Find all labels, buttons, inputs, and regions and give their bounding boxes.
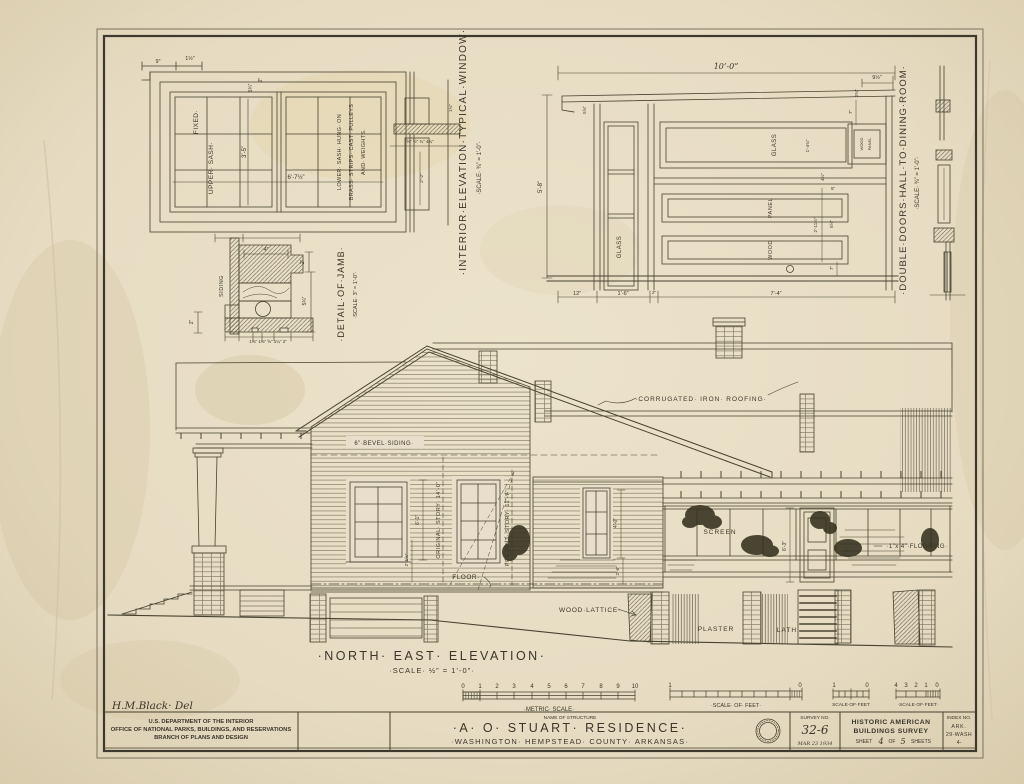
fixed-label: FIXED·	[193, 110, 200, 134]
panel-label: PANEL	[768, 198, 774, 218]
glass-label: GLASS	[772, 134, 778, 157]
dim-label: 2’-1⅝”	[404, 553, 409, 566]
survey-no-label: SURVEY NO.	[800, 715, 829, 721]
feet-scale-label: ·SCALE· OF· FEET·	[711, 703, 761, 709]
elevation-window	[452, 476, 504, 567]
delineator-signature: H.M.Black· Del	[111, 700, 193, 712]
present-story-label: PRESENT· STORY· 11’-7”	[505, 490, 511, 566]
jamb-detail-title: ·DETAIL·OF·JAMB·	[336, 246, 346, 341]
index-line: ARK.	[951, 724, 966, 730]
survey-no-value: 32-6	[802, 723, 829, 737]
wood-label: WOOD	[768, 240, 774, 260]
habs-line: HISTORIC AMERICAN	[851, 719, 930, 726]
dim-label: 2’-11½”	[812, 217, 818, 232]
dim-label: ⅝” ½” ¾” 4¾”	[406, 138, 434, 144]
survey-date: MAR 23 1934	[797, 741, 833, 747]
index-no-label: INDEX NO.	[947, 715, 972, 721]
dim-label: 6’-1”	[415, 515, 421, 525]
original-story-label: ORIGINAL· STORY· 14’-0”	[436, 481, 442, 558]
sheets-word: SHEETS	[911, 739, 932, 745]
window-detail-title: ·INTERIOR·ELEVATION·TYPICAL·WINDOW·	[458, 29, 469, 276]
bevel-siding-label: 6”·BEVEL·SIDING·	[354, 441, 413, 447]
dim-label: 5¼”	[302, 296, 308, 305]
dim-label: 4½”	[819, 173, 825, 181]
elevation-scale: ·SCALE· ½” = 1’-0”·	[389, 666, 474, 675]
dim-label: 6’-7½”	[287, 174, 304, 181]
dim-label: 1’-4¾”	[805, 139, 810, 152]
plaster-label: PLASTER	[698, 626, 735, 633]
sheet-number: 4	[877, 737, 883, 746]
upper-sash-label: UPPER· SASH·	[208, 142, 215, 194]
dim-label: 1¾”	[448, 104, 453, 112]
chimney	[800, 394, 814, 452]
dept-line: OFFICE OF NATIONAL PARKS, BUILDINGS, AND…	[111, 727, 292, 733]
dim-label: 9”	[156, 59, 161, 65]
flooring-label: ·1”x 4”·FLOORING·	[886, 544, 947, 550]
siding-label: SIDING	[219, 275, 225, 297]
dim-label: 5’-8”	[538, 181, 544, 193]
floor-label: FLOOR·	[452, 574, 480, 581]
paper-stain	[195, 355, 305, 425]
dim-label: 7’-4”	[770, 291, 781, 297]
doors-detail-title: ·DOUBLE·DOORS·HALL·TO·DINING·ROOM·	[898, 65, 909, 295]
dim-label: 2”	[652, 290, 657, 295]
dim-label: 2’-6”	[615, 566, 620, 576]
habs-line: BUILDINGS SURVEY	[853, 728, 928, 735]
dim-label: 6’-3”	[782, 541, 788, 551]
lower-sash-label: BRASS· STRIPS· CAST· PULLEYS	[349, 104, 355, 200]
dept-line: BRANCH OF PLANS AND DESIGN	[154, 735, 248, 741]
structure-name: ·A· O· STUART· RESIDENCE·	[453, 721, 688, 735]
of-word: OF	[889, 739, 896, 745]
drawing-canvas: 9” 1½” 5¾” 2” UPPER· SASH· FIXED· 3’-5” …	[0, 0, 1024, 784]
jamb-detail-scale: ·SCALE· 3” = 1’-0”·	[353, 271, 359, 318]
dim-label: 2”	[189, 319, 195, 324]
wood-panel-label: WOOD	[859, 137, 864, 150]
glass-label: GLASS	[617, 236, 623, 259]
dim-label: 7”	[829, 266, 834, 271]
roofing-label: ·CORRUGATED· IRON· ROOFING·	[635, 396, 767, 403]
dim-label: 1’-6”	[617, 291, 628, 297]
dim-label: 4’-0”	[613, 518, 619, 528]
lath-label: LATH	[777, 627, 797, 634]
dim-label: 5¾”	[248, 83, 254, 92]
wood-panel-label: PANEL	[867, 137, 872, 151]
dept-line: U.S. DEPARTMENT OF THE INTERIOR	[149, 719, 255, 725]
index-line: 4-	[957, 740, 962, 746]
wood-lattice-label: WOOD·LATTICE·	[559, 607, 621, 614]
metric-scale-label: ·METRIC· SCALE·	[524, 707, 574, 713]
dim-label: 2”	[258, 77, 264, 82]
dim-label: 2”	[300, 259, 306, 264]
index-line: 29-WASH	[946, 732, 972, 738]
feet-scale-label: ·SCALE·OF·FEET·	[897, 702, 938, 708]
doors-detail-scale: ·SCALE· ¾” = 1’-0”·	[915, 156, 921, 209]
elevation-window	[346, 478, 411, 566]
screen-label: SCREEN	[703, 529, 736, 536]
feet-scale-label: SCALE·OF·FEET	[832, 702, 870, 708]
dim-label: 7”	[848, 110, 853, 115]
dim-label: 9½”	[872, 74, 882, 81]
metric-tick: 10	[632, 684, 639, 690]
dim-label: 2’-2”	[419, 173, 425, 183]
elevation-title: ·NORTH· EAST· ELEVATION·	[318, 649, 547, 663]
metric-scale-bar	[463, 690, 635, 701]
sheets-total: 5	[900, 737, 905, 746]
dim-label: 2¾”	[854, 89, 859, 97]
dim-label: 3’-5”	[242, 146, 248, 158]
structure-location: ·WASHINGTON· HEMPSTEAD· COUNTY· ARKANSAS…	[451, 737, 689, 746]
sheet-word: SHEET	[856, 739, 873, 745]
chimney	[535, 381, 551, 422]
window-detail-scale: ·SCALE· ¾” = 1’-0”·	[477, 141, 483, 194]
dim-label: 12”	[573, 291, 581, 297]
dim-label: 5”	[831, 186, 836, 191]
dim-label: 1⅜” 1⅜” ⅝” 1¼” 2”	[249, 339, 287, 344]
dim-label: 10’-0”	[714, 62, 739, 71]
lower-sash-label: AND· WEIGHTS.	[361, 129, 367, 175]
dim-label: 5½”	[828, 220, 834, 228]
habs-drawing-sheet: 9” 1½” 5¾” 2” UPPER· SASH· FIXED· 3’-5” …	[0, 0, 1024, 784]
dim-label: 4”	[264, 247, 269, 253]
dim-label: 1½”	[185, 55, 195, 62]
addition-wall	[533, 477, 663, 588]
dim-label: 5⅝”	[582, 106, 587, 114]
lower-sash-label: LOWER· SASH· HUNG· ON	[337, 114, 343, 190]
